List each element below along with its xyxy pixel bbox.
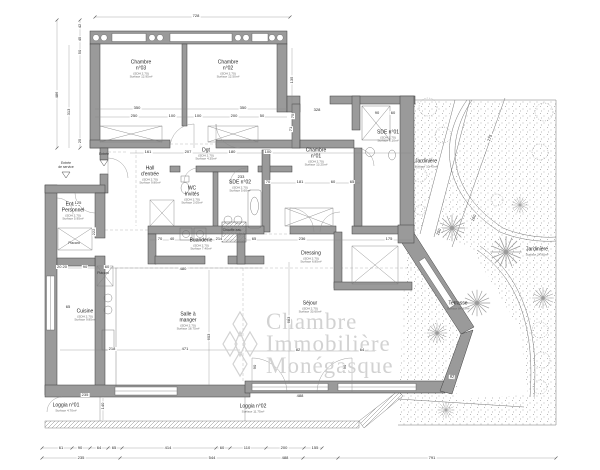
dimension-text: 222 (92, 228, 96, 237)
dimension-text: 471 (181, 347, 190, 351)
room-label-salle-a-manger: Salle à manger(SDH 2.70)Surface 18.75m² (177, 313, 200, 332)
dimension-text: 200 (280, 446, 289, 450)
room-label-wc-invites: WC Invités(SDH 2.70)Surface 2.05m² (181, 187, 202, 206)
room-label-sde-02: SDE n°02(SDH 2.70)Surface 5.60m² (229, 180, 251, 193)
dimension-text: 180 (228, 150, 237, 154)
room-label-degagement: Dgt(SDH 2.70)Surface 4.35m² (195, 148, 216, 161)
dimension-text: 25 (78, 138, 82, 144)
dimension-text: 313 (67, 108, 71, 117)
dimension-text: 90 (77, 446, 83, 450)
room-label-sde-01: SDE n°01(SDH 2.70)Surface 6.10m² (377, 130, 399, 143)
room-label-placard-1: Placard (68, 242, 80, 246)
dimension-text: 486 (55, 91, 59, 100)
room-label-buanderie: Buanderie(SDH 2.70)Surface 7.40m² (190, 238, 213, 251)
dimension-text: 603 (207, 333, 211, 342)
dimension-text: 328 (313, 108, 322, 112)
dimension-text: 92 (449, 375, 456, 379)
dimension-text: 100 (194, 114, 203, 118)
room-label-entree: Entrée (99, 153, 109, 157)
dimension-text: 140 (101, 402, 105, 411)
dimension-text: 235 (81, 393, 90, 397)
dimension-text: 161 (144, 150, 153, 154)
dimension-text: 90 (253, 364, 257, 370)
room-label-jardiniere-2: JardinièreSurface 24.80m² (526, 247, 549, 256)
dimension-text: 70 (157, 237, 163, 241)
room-label-hall-entree: Hall d'entrée(SDH 2.70)Surface 9.80m² (139, 167, 160, 186)
dimension-text: 60 (390, 111, 396, 115)
dimension-text: 82 (295, 348, 301, 352)
dimension-text: 71 (289, 126, 293, 132)
dimension-text: 42 (78, 23, 82, 29)
room-label-chambre-02: Chambre n°02(SDH 2.70)Surface 12.50m² (217, 61, 240, 80)
room-label-chambre-03: Chambre n°03(SDH 2.70)Surface 12.95m² (130, 61, 153, 80)
dimension-text: 250 (130, 114, 139, 118)
dimension-text: 20 20 (56, 265, 68, 269)
dimension-text: 125 (74, 201, 83, 205)
room-label-terrasse: TerrasseSurface 84.95m² (447, 301, 470, 310)
dimension-text: 275 (487, 133, 494, 143)
dimension-text: 175 (385, 237, 394, 241)
dimension-text: 110 (243, 446, 251, 450)
dimension-text: 50 (78, 49, 82, 55)
dimension-text: 45 (78, 36, 82, 42)
dimension-text: 65 (251, 237, 257, 241)
dimension-text: 200 (230, 114, 239, 118)
dimension-text: 683 (287, 316, 291, 325)
dimension-text: 488 (296, 394, 305, 398)
dimension-text: 350 (239, 106, 248, 110)
dimension-text: 60 (104, 265, 110, 269)
dimension-text: 480 (179, 267, 188, 271)
dimension-text: 64 (359, 348, 365, 352)
dimension-text: 90 (374, 111, 380, 115)
room-label-loggia-02: Loggia n°02Surface 11.75m² (240, 404, 267, 413)
dimension-text: 65 (349, 180, 355, 184)
dimension-text: 544 (208, 456, 217, 460)
dimension-text: 90 (343, 364, 347, 370)
dimension-text: 60 (330, 180, 336, 184)
floor-plan-sheet: Chambre Immobilière Monégasque Chambre n… (0, 0, 600, 470)
room-label-placard-2: Placard (97, 272, 109, 276)
dimension-text: 791 (428, 456, 437, 460)
dimension-text: 75 (291, 113, 295, 119)
dimension-text: 90 (82, 265, 88, 269)
room-label-sejour: Séjour(SDH 2.70)Surface 33.60m² (299, 301, 322, 314)
room-label-entree-service: Entrée de service (58, 162, 73, 170)
room-label-dressing: Dressing(SDH 2.70)Surface 6.85m² (300, 251, 321, 264)
dimension-text: 235 (77, 456, 86, 460)
dimension-text: 150 (436, 227, 443, 237)
dimension-text: 181 (296, 180, 305, 184)
room-label-jardiniere-1: JardinièreSurface 10.45m² (415, 159, 438, 168)
dimension-text: 155 (311, 446, 320, 450)
dimension-text: 61 (58, 446, 64, 450)
room-label-chambre-01: Chambre n°01(SDH 2.70)Surface 13.25m² (305, 149, 328, 168)
dimension-text: 60 (219, 446, 225, 450)
dimension-text: 135 (290, 76, 294, 85)
dimension-text: 50 (259, 114, 265, 118)
dimension-text: 218 (108, 347, 117, 351)
dimension-text: 160 (471, 213, 478, 223)
dimension-text: 488 (281, 456, 290, 460)
dimension-text: 100 (264, 150, 273, 154)
dimension-text: 65 (65, 305, 71, 309)
dimension-text: 64 (96, 446, 102, 450)
dimension-text: 100 (168, 114, 177, 118)
label-layer: Chambre n°03(SDH 2.70)Surface 12.95m²Cha… (0, 0, 600, 470)
dimension-text: 350 (133, 106, 142, 110)
room-label-entree-personnel: Entrée Personnel(SDH 2.70)Surface 5.95m² (62, 203, 85, 222)
room-label-cuisine: Cuisine(SDH 2.70)Surface 9.85m² (74, 309, 95, 322)
dimension-text: 207 (184, 150, 193, 154)
dimension-text: 728 (192, 14, 201, 18)
dimension-text: 414 (164, 446, 173, 450)
dimension-text: 233 (237, 175, 246, 179)
dimension-text: 65 (111, 446, 117, 450)
dimension-text: 70 (265, 180, 271, 184)
dimension-text: 236 (298, 237, 307, 241)
room-label-loggia-01: Loggia n°01Surface 4.70m² (53, 403, 80, 412)
dimension-text: 40 (169, 237, 175, 241)
room-label-chauffe-eau: Chauffe-eau (223, 229, 242, 233)
dimension-text: 214 (215, 237, 224, 241)
